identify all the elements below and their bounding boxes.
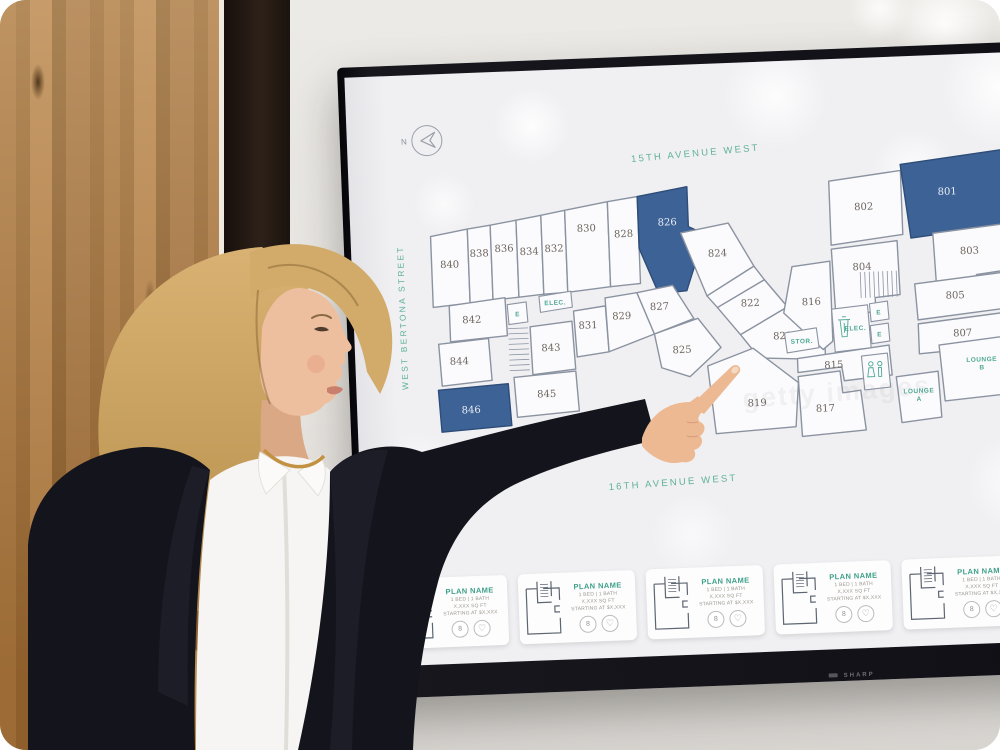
thumbnail-floorplan-sketch <box>523 578 567 638</box>
plan-card[interactable]: PLAN NAME1 BED | 1 BATHX,XXX SQ FTSTARTI… <box>773 560 893 634</box>
floorplan-unit-label: 805 <box>945 290 965 302</box>
plan-card-info: PLAN NAME1 BED | 1 BATHX,XXX SQ FTSTARTI… <box>948 560 1000 622</box>
plan-name: PLAN NAME <box>829 570 877 581</box>
plan-price: STARTING AT $X,XXX <box>827 594 882 602</box>
plan-card[interactable]: PLAN NAME1 BED | 1 BATHX,XXX SQ FTSTARTI… <box>901 555 1000 629</box>
street-label-top: 15TH AVENUE WEST <box>631 142 760 165</box>
street-label-bottom: 16TH AVENUE WEST <box>608 473 737 493</box>
floorplan-unit-label: 842 <box>462 315 482 327</box>
floorplan-unit-label: 826 <box>657 217 677 229</box>
floorplan-unit-828[interactable] <box>607 197 640 287</box>
floorplan-unit-label: 803 <box>960 245 980 257</box>
unit-count-button[interactable]: 8 <box>835 605 853 623</box>
floorplan-unit-label: 822 <box>741 298 761 310</box>
compass-north-label: N <box>401 137 407 146</box>
floorplan-unit-label: 830 <box>577 223 597 235</box>
floorplan-unit-label: 829 <box>612 311 632 323</box>
plan-thumbnail <box>523 578 567 638</box>
floorplan-unit-label: E <box>877 331 882 338</box>
plan-price: STARTING AT $X,XXX <box>571 604 626 612</box>
unit-count-button[interactable]: 8 <box>963 600 981 618</box>
thumbnail-floorplan-sketch <box>395 583 439 643</box>
thumbnail-floorplan-sketch <box>651 573 695 633</box>
floorplan-unit-label: 832 <box>544 243 564 255</box>
floorplan-unit-830[interactable] <box>564 202 610 293</box>
floorplan-unit-label: 827 <box>650 301 670 313</box>
wood-panel <box>0 0 222 750</box>
plan-price: STARTING AT $X,XXX <box>699 599 754 607</box>
heart-icon: ♡ <box>734 613 742 622</box>
unit-count-button[interactable]: 8 <box>707 610 725 628</box>
heart-icon: ♡ <box>990 604 998 613</box>
plan-name: PLAN NAME <box>445 585 493 596</box>
plan-card-info: PLAN NAME1 BED | 1 BATHX,XXX SQ FTSTARTI… <box>565 575 632 637</box>
dark-door-jamb <box>224 0 290 750</box>
floorplan-unit-label: 838 <box>470 248 490 260</box>
floorplan-unit-label: 807 <box>953 328 973 340</box>
favorite-button[interactable]: ♡ <box>473 619 491 637</box>
floorplan-unit-label: 816 <box>802 297 822 309</box>
unit-count-button[interactable]: 8 <box>579 615 597 633</box>
floorplan-unit-label: 804 <box>852 262 872 274</box>
plan-price: STARTING AT $X,XXX <box>955 589 1000 597</box>
plan-thumbnail <box>395 583 439 643</box>
compass-icon: N <box>400 125 442 157</box>
scene: N 15TH AVENUE WEST WEST BERTONA STREET 1… <box>0 0 1000 750</box>
floorplan-unit-label: STOR. <box>791 338 814 346</box>
thumbnail-floorplan-sketch <box>779 568 823 628</box>
floorplan-unit-838[interactable] <box>467 225 493 303</box>
plan-card-info: PLAN NAME1 BED | 1 BATHX,XXX SQ FTSTARTI… <box>693 570 760 632</box>
touchscreen[interactable]: N 15TH AVENUE WEST WEST BERTONA STREET 1… <box>344 51 1000 667</box>
floorplan-unit-label: 845 <box>537 389 557 401</box>
floorplan-unit-label: 834 <box>519 246 539 258</box>
floorplan-unit-label: 828 <box>614 229 634 241</box>
favorite-button[interactable]: ♡ <box>985 599 1000 617</box>
thumbnail-floorplan-sketch <box>906 563 950 623</box>
heart-icon: ♡ <box>478 623 486 632</box>
floorplan-unit-label: 831 <box>578 320 598 332</box>
favorite-button[interactable]: ♡ <box>601 614 619 632</box>
floorplan-unit-label: E <box>515 311 520 318</box>
unit-count-button[interactable]: 8 <box>451 620 469 638</box>
stairs-icon <box>508 328 530 371</box>
floorplan-unit-label: 840 <box>440 259 460 271</box>
floorplan-unit-label: 802 <box>854 202 874 214</box>
tv-frame: N 15TH AVENUE WEST WEST BERTONA STREET 1… <box>337 41 1000 699</box>
plan-price: STARTING AT $X,XXX <box>443 609 498 617</box>
plan-card[interactable]: PLAN NAME1 BED | 1 BATHX,XXX SQ FTSTARTI… <box>518 570 638 644</box>
tv-brand-logo: SHARP <box>829 672 875 680</box>
plan-name: PLAN NAME <box>573 580 621 591</box>
plan-card-info: PLAN NAME1 BED | 1 BATHX,XXX SQ FTSTARTI… <box>437 580 504 642</box>
floorplan-unit-label: E <box>876 309 881 316</box>
floorplan-unit-label: 844 <box>450 356 470 368</box>
plan-thumbnail <box>779 568 823 628</box>
floorplan-unit-836[interactable] <box>490 220 519 300</box>
plan-thumbnail <box>906 563 950 623</box>
floorplan-unit-label: 825 <box>672 345 692 357</box>
favorite-button[interactable]: ♡ <box>857 604 875 622</box>
heart-icon: ♡ <box>862 608 870 617</box>
street-label-left: WEST BERTONA STREET <box>395 245 411 390</box>
plan-name: PLAN NAME <box>701 575 749 586</box>
floorplan-unit-label: 843 <box>541 343 561 355</box>
floorplan-unit-label: 846 <box>461 405 481 417</box>
plan-card[interactable]: PLAN NAME1 BED | 1 BATHX,XXX SQ FTSTARTI… <box>645 565 765 639</box>
floorplan-unit-label: 801 <box>937 186 957 198</box>
plan-card[interactable]: PLAN NAME1 BED | 1 BATHX,XXX SQ FTSTARTI… <box>390 575 510 649</box>
floorplan-unit-label: 836 <box>494 243 514 255</box>
floorplan-unit-label: ELEC. <box>544 299 566 307</box>
floorplan-unit-label: 824 <box>708 248 728 260</box>
plan-card-info: PLAN NAME1 BED | 1 BATHX,XXX SQ FTSTARTI… <box>821 565 888 627</box>
heart-icon: ♡ <box>606 618 614 627</box>
plan-name: PLAN NAME <box>957 565 1000 576</box>
floorplan-unit-label: 815 <box>824 360 844 372</box>
plan-thumbnail <box>651 573 695 633</box>
favorite-button[interactable]: ♡ <box>729 609 747 627</box>
